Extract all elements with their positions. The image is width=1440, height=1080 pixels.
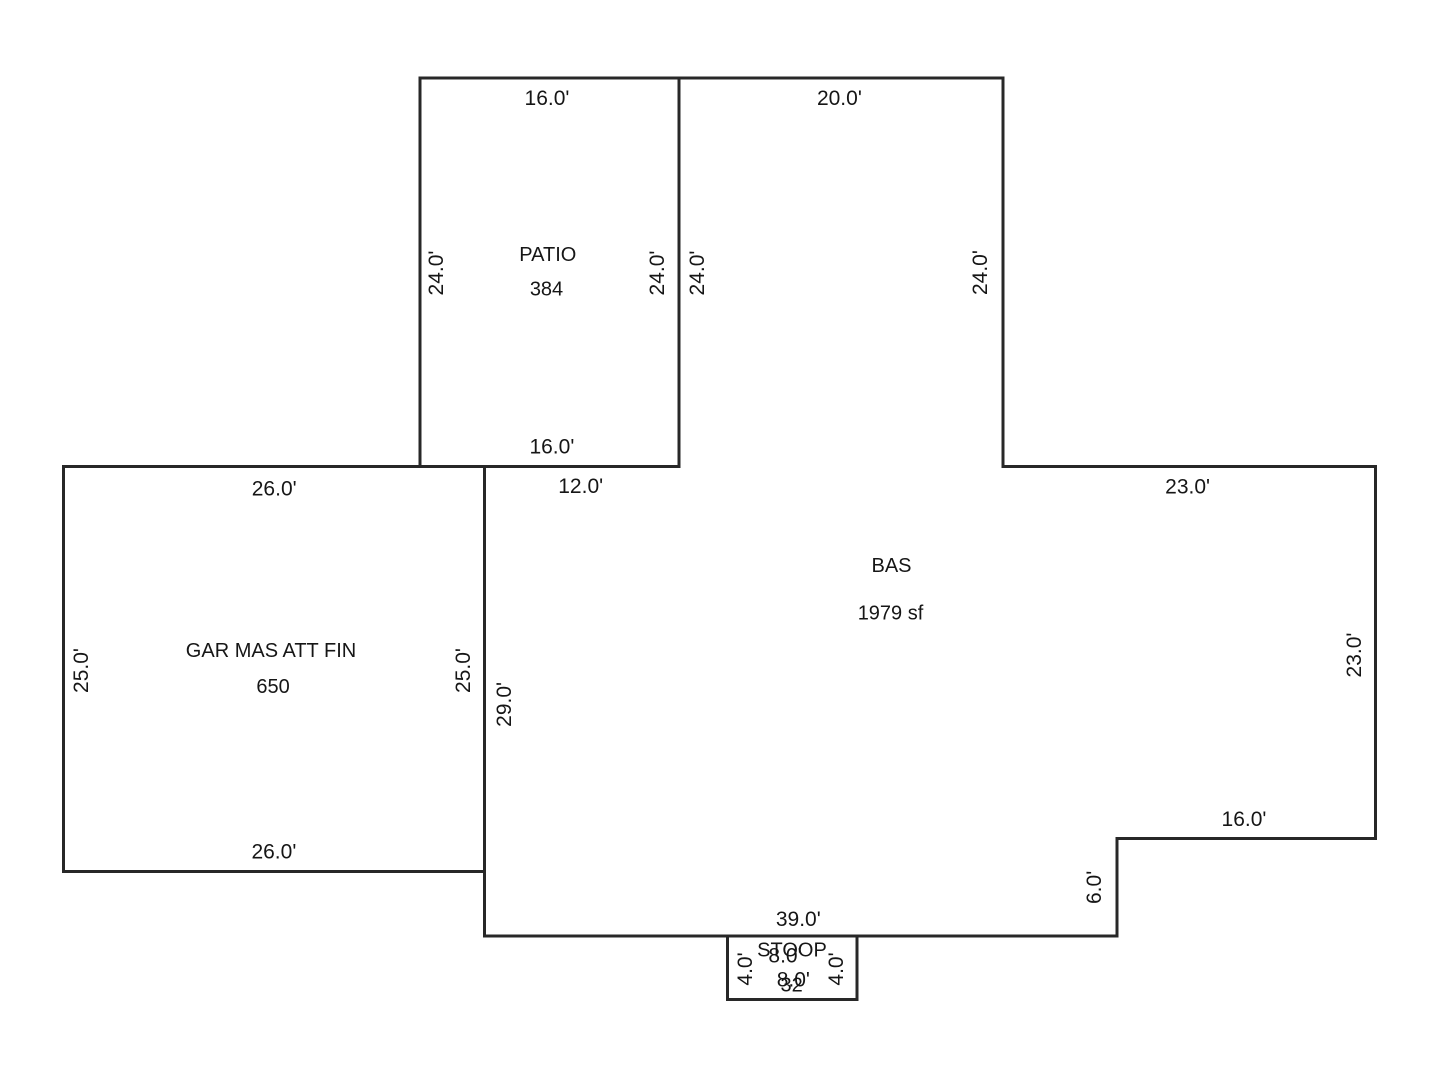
- svg-text:16.0': 16.0': [1222, 808, 1267, 831]
- svg-text:12.0': 12.0': [558, 475, 603, 498]
- svg-text:26.0': 26.0': [251, 840, 296, 863]
- svg-text:39.0': 39.0': [776, 908, 821, 931]
- svg-text:23.0': 23.0': [1343, 633, 1366, 678]
- svg-text:6.0': 6.0': [1083, 871, 1106, 904]
- svg-text:1979 sf: 1979 sf: [858, 603, 924, 625]
- svg-text:650: 650: [256, 676, 289, 698]
- svg-text:24.0': 24.0': [425, 251, 448, 296]
- svg-text:16.0': 16.0': [529, 436, 574, 459]
- svg-text:24.0': 24.0': [646, 251, 669, 296]
- svg-text:24.0': 24.0': [686, 251, 709, 296]
- svg-text:384: 384: [530, 279, 563, 301]
- svg-text:25.0': 25.0': [452, 648, 475, 693]
- svg-text:25.0': 25.0': [70, 648, 93, 693]
- svg-text:BAS: BAS: [871, 555, 911, 577]
- svg-text:4.0': 4.0': [734, 952, 757, 985]
- svg-text:32: 32: [780, 974, 802, 996]
- svg-text:26.0': 26.0': [252, 478, 297, 501]
- svg-text:PATIO: PATIO: [519, 244, 576, 266]
- svg-text:4.0': 4.0': [825, 952, 848, 985]
- svg-text:24.0': 24.0': [969, 250, 992, 295]
- svg-text:20.0': 20.0': [817, 87, 862, 110]
- svg-text:GAR MAS ATT FIN: GAR MAS ATT FIN: [186, 640, 356, 662]
- svg-text:23.0': 23.0': [1165, 476, 1210, 499]
- svg-text:29.0': 29.0': [493, 682, 516, 727]
- svg-text:8.0': 8.0': [768, 944, 801, 967]
- svg-text:16.0': 16.0': [525, 87, 570, 110]
